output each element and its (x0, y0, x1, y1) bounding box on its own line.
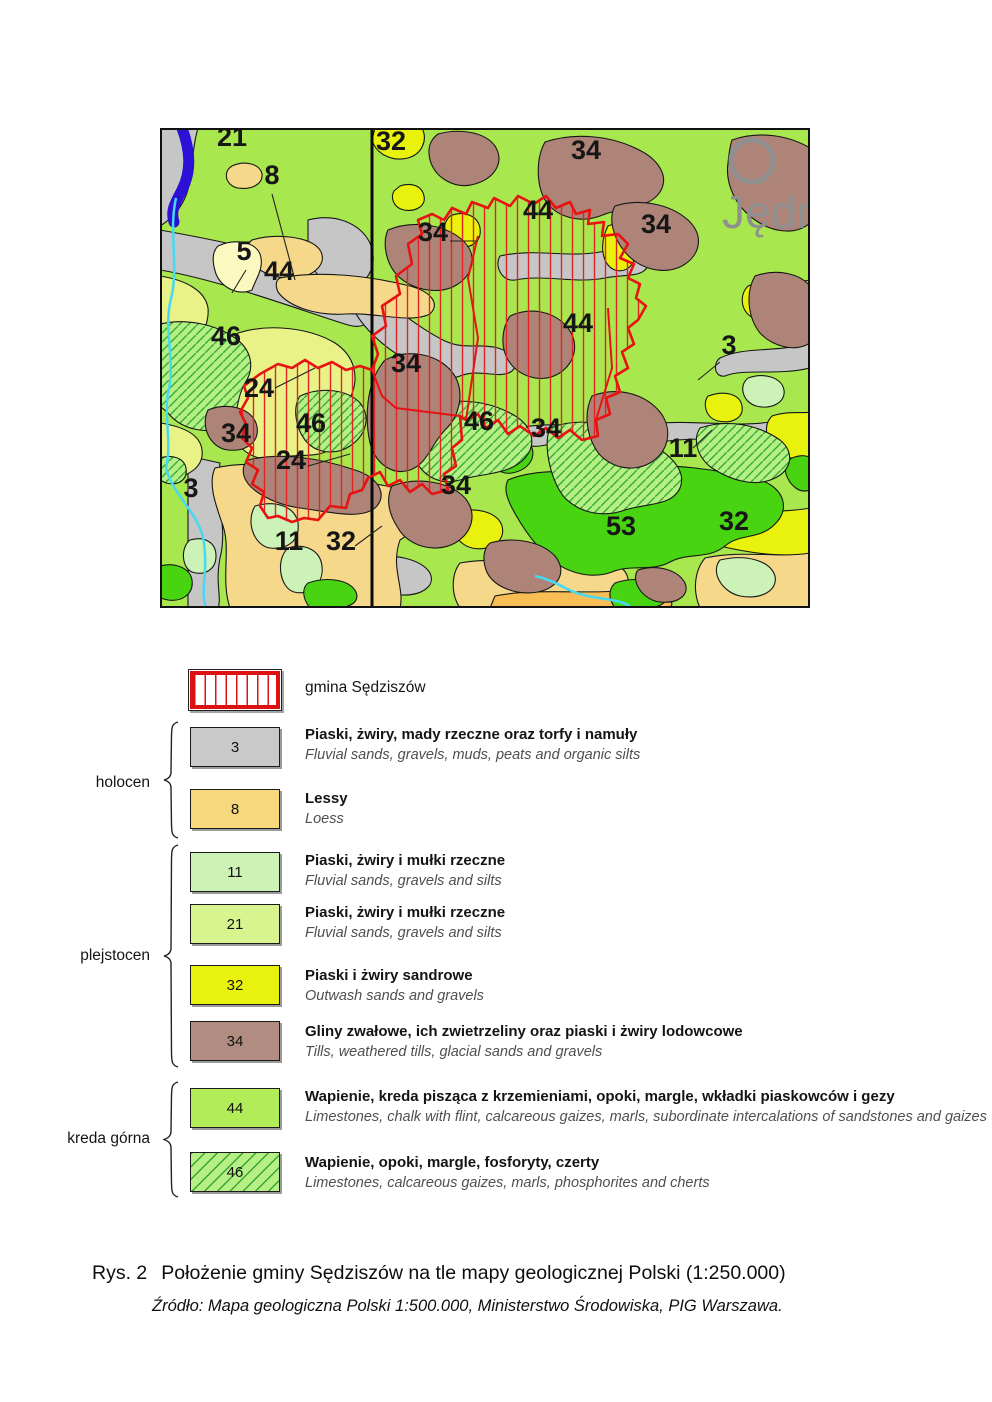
map-unit-label: 32 (326, 526, 356, 556)
map-unit-label: 8 (264, 160, 279, 190)
group-label-plejstocen: plejstocen (40, 947, 150, 965)
legend-en-text: Limestones, chalk with flint, calcareous… (305, 1107, 987, 1127)
legend-pl-text: Wapienie, kreda pisząca z krzemieniami, … (305, 1087, 987, 1107)
swatch-code: 8 (231, 801, 239, 818)
city-label: Jędrz (722, 186, 810, 238)
figure-caption: Rys. 2Położenie gminy Sędziszów na tle m… (92, 1262, 786, 1285)
map-unit-label: 34 (531, 413, 561, 443)
geological-map: Jędrz 2183234443434544462434443464 (160, 128, 810, 608)
swatch-unit-3: 3 (190, 727, 280, 767)
legend-en-text: Limestones, calcareous gaizes, marls, ph… (305, 1173, 710, 1193)
figure-source: Źródło: Mapa geologiczna Polski 1:500.00… (152, 1297, 783, 1316)
map-unit-label: 44 (523, 195, 553, 225)
swatch-unit-8: 8 (190, 789, 280, 829)
map-unit-label: 44 (264, 256, 294, 286)
swatch-unit-44: 44 (190, 1088, 280, 1128)
swatch-code: 3 (231, 739, 239, 756)
swatch-code: 44 (227, 1100, 244, 1117)
map-unit-label: 34 (641, 209, 671, 239)
legend-pl-text: Piaski i żwiry sandrowe (305, 966, 484, 986)
map-svg: Jędrz 2183234443434544462434443464 (160, 128, 810, 608)
map-unit-label: 11 (275, 526, 304, 556)
map-unit-label: 34 (221, 418, 251, 448)
gmina-symbol-swatch (188, 669, 282, 711)
swatch-code: 34 (227, 1033, 244, 1050)
legend-en-text: Fluvial sands, gravels, muds, peats and … (305, 745, 640, 765)
group-label-holocen: holocen (40, 774, 150, 792)
map-unit-label: 21 (217, 128, 247, 152)
document-page: Jędrz 2183234443434544462434443464 (0, 0, 992, 1402)
legend-pl-text: Lessy (305, 789, 348, 809)
legend-en-text: Outwash sands and gravels (305, 986, 484, 1006)
swatch-unit-11: 11 (190, 852, 280, 892)
caption-prefix: Rys. 2 (92, 1262, 147, 1284)
swatch-code: 32 (227, 977, 244, 994)
legend-item-11: Piaski, żwiry i mułki rzeczne Fluvial sa… (305, 851, 505, 891)
map-unit-label: 34 (418, 217, 448, 247)
brace-kreda-gorna-icon (163, 1081, 181, 1198)
map-unit-label: 3 (721, 330, 736, 360)
map-unit-label: 44 (563, 308, 593, 338)
legend-en-text: Loess (305, 809, 348, 829)
swatch-code: 21 (227, 916, 244, 933)
swatch-unit-32: 32 (190, 965, 280, 1005)
legend-pl-text: Piaski, żwiry i mułki rzeczne (305, 903, 505, 923)
map-unit-label: 32 (376, 128, 406, 156)
swatch-unit-34: 34 (190, 1021, 280, 1061)
gmina-label: gmina Sędziszów (305, 679, 426, 697)
map-unit-label: 11 (669, 433, 698, 463)
map-unit-label: 46 (464, 406, 494, 436)
map-unit-label: 34 (391, 348, 421, 378)
legend-item-32: Piaski i żwiry sandrowe Outwash sands an… (305, 966, 484, 1006)
legend-item-44: Wapienie, kreda pisząca z krzemieniami, … (305, 1087, 987, 1127)
legend-pl-text: Wapienie, opoki, margle, fosforyty, czer… (305, 1153, 710, 1173)
legend-item-21: Piaski, żwiry i mułki rzeczne Fluvial sa… (305, 903, 505, 943)
map-unit-label: 34 (571, 135, 601, 165)
map-unit-label: 34 (441, 470, 471, 500)
map-unit-label: 24 (276, 445, 306, 475)
map-unit-label: 32 (719, 506, 749, 536)
legend-item-3: Piaski, żwiry, mady rzeczne oraz torfy i… (305, 725, 640, 765)
map-unit-label: 53 (606, 511, 636, 541)
group-label-kreda-gorna: kreda górna (30, 1130, 150, 1148)
swatch-code: 11 (227, 864, 243, 881)
swatch-code: 46 (227, 1164, 244, 1181)
map-unit-label: 3 (183, 473, 198, 503)
brace-holocen-icon (163, 721, 181, 839)
legend-pl-text: Piaski, żwiry i mułki rzeczne (305, 851, 505, 871)
swatch-unit-46: 46 (190, 1152, 280, 1192)
legend-en-text: Fluvial sands, gravels and silts (305, 871, 505, 891)
legend-item-46: Wapienie, opoki, margle, fosforyty, czer… (305, 1153, 710, 1193)
brace-plejstocen-icon (163, 844, 181, 1068)
swatch-unit-21: 21 (190, 904, 280, 944)
caption-text: Położenie gminy Sędziszów na tle mapy ge… (161, 1262, 785, 1284)
map-unit-label: 24 (244, 373, 274, 403)
legend-pl-text: Piaski, żwiry, mady rzeczne oraz torfy i… (305, 725, 640, 745)
map-unit-label: 46 (296, 408, 326, 438)
legend-en-text: Tills, weathered tills, glacial sands an… (305, 1042, 743, 1062)
legend-pl-text: Gliny zwałowe, ich zwietrzeliny oraz pia… (305, 1022, 743, 1042)
map-unit-label: 46 (211, 321, 241, 351)
gmina-hatch-pattern (190, 671, 280, 709)
legend-item-8: Lessy Loess (305, 789, 348, 829)
map-unit-label: 5 (236, 236, 251, 266)
legend-item-34: Gliny zwałowe, ich zwietrzeliny oraz pia… (305, 1022, 743, 1062)
legend-en-text: Fluvial sands, gravels and silts (305, 923, 505, 943)
